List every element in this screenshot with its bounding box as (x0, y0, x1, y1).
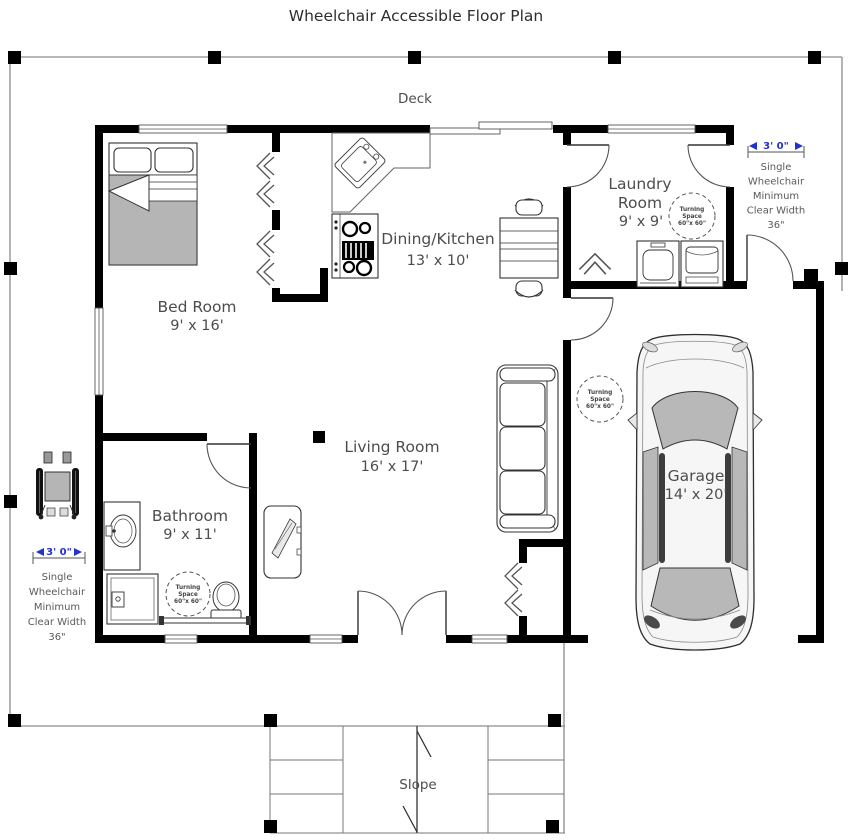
bed (109, 143, 197, 265)
svg-text:36": 36" (48, 632, 65, 643)
turning-space-label: Turning (680, 207, 705, 213)
svg-text:36": 36" (767, 220, 784, 231)
svg-text:Minimum: Minimum (34, 602, 80, 613)
front-double-door (358, 591, 446, 635)
svg-text:Turning: Turning (176, 585, 201, 591)
garage-entry-door (571, 298, 613, 340)
clearance-note-left: 3' 0" Single Wheelchair Minimum Clear Wi… (28, 547, 86, 643)
svg-text:Wheelchair: Wheelchair (748, 177, 805, 188)
stove (332, 214, 378, 278)
bathroom-label: Bathroom (152, 507, 228, 525)
dimension-arrow-left-icon (749, 142, 757, 150)
deck-label: Deck (398, 91, 432, 107)
dimension-arrow-right-icon (795, 142, 803, 150)
floor-plan-page: Wheelchair Accessible Floor Plan Slope D… (0, 0, 848, 840)
svg-text:60"x 60": 60"x 60" (174, 599, 202, 605)
laundry-dims: 9' x 9' (619, 214, 663, 230)
svg-text:Wheelchair: Wheelchair (29, 587, 86, 598)
svg-text:60"x 60": 60"x 60" (678, 221, 706, 227)
bathroom-door (207, 444, 251, 488)
bedroom-closet-doors (257, 153, 274, 285)
page-title: Wheelchair Accessible Floor Plan (289, 7, 543, 25)
bathroom-vanity (104, 502, 140, 570)
shower (107, 574, 158, 624)
svg-text:Clear Width: Clear Width (747, 206, 805, 217)
dining-kitchen-label: Dining/Kitchen (381, 230, 495, 248)
laundry-label-line2: Room (618, 194, 662, 212)
bedroom-label: Bed Room (157, 298, 236, 316)
laundry-right-door (688, 145, 730, 187)
clearance-dimension: 3' 0" (763, 141, 789, 152)
dining-kitchen-dims: 13' x 10' (407, 253, 470, 269)
bedroom-dims: 9' x 16' (170, 318, 223, 334)
living-closet-doors (505, 563, 522, 616)
svg-text:Turning: Turning (588, 390, 613, 396)
dimension-arrow-right-icon (74, 548, 82, 556)
dimension-arrow-left-icon (36, 548, 44, 556)
svg-text:Clear Width: Clear Width (28, 617, 86, 628)
svg-text:Space: Space (178, 592, 198, 598)
svg-text:Space: Space (682, 214, 702, 220)
toilet (211, 582, 241, 622)
side-exterior-door (747, 235, 793, 281)
svg-text:Space: Space (590, 397, 610, 403)
laundry-fold-symbol (579, 254, 610, 274)
svg-text:Minimum: Minimum (753, 191, 799, 202)
washer (637, 241, 679, 287)
living-room-dims: 16' x 17' (361, 459, 424, 475)
svg-text:Single: Single (42, 572, 73, 583)
clearance-note-right: 3' 0" Single Wheelchair Minimum Clear Wi… (747, 141, 805, 231)
sofa (497, 365, 558, 532)
clearance-dimension: 3' 0" (46, 547, 72, 558)
turning-space-bathroom: Turning Space 60"x 60" (166, 572, 210, 616)
laundry-label-line1: Laundry (608, 175, 671, 193)
bathroom-dims: 9' x 11' (163, 527, 216, 543)
wheelchair-icon (36, 452, 79, 519)
svg-text:60"x 60": 60"x 60" (586, 404, 614, 410)
dining-table (500, 199, 558, 297)
garage-label: Garage (668, 467, 725, 485)
floor-plan-canvas: Wheelchair Accessible Floor Plan Slope D… (0, 0, 848, 840)
turning-space-garage: Turning Space 60"x 60" (577, 376, 623, 422)
laundry-left-door (567, 145, 609, 187)
svg-text:Single: Single (761, 162, 792, 173)
turning-space-laundry: Turning Space 60"x 60" (669, 193, 715, 239)
dryer (681, 241, 723, 287)
living-room-label: Living Room (344, 438, 439, 456)
garage-dims: 14' x 20' (665, 487, 728, 503)
slope-label: Slope (399, 777, 436, 793)
tv-console (264, 506, 301, 578)
kitchen-counter (332, 133, 430, 212)
sliding-door (430, 122, 552, 134)
